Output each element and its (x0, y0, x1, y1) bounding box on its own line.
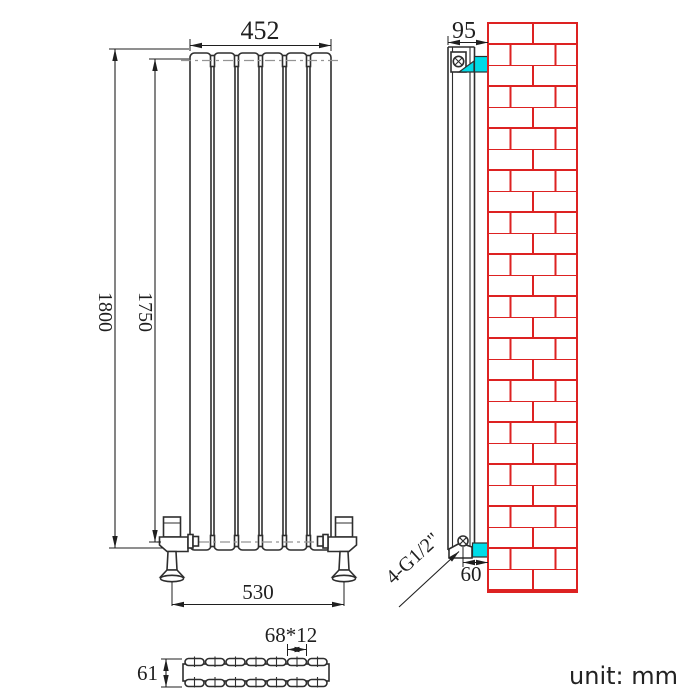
dim-section-depth-61: 61 (137, 659, 182, 687)
side-view: 95 60 4-G1/2" (382, 18, 577, 607)
dim-height-inner-label: 1750 (134, 292, 156, 332)
wall-anchor-bottom (473, 543, 489, 557)
unit-label: unit: mm (569, 662, 678, 690)
dim-tube-size-label: 68*12 (265, 623, 318, 647)
drawing-canvas: 452 1800 1750 530 (0, 0, 700, 700)
radiator-profile (448, 47, 475, 550)
connection-label: 4-G1/2" (382, 529, 445, 589)
dim-valve-span-label: 530 (242, 580, 274, 604)
dim-depth-95: 95 (448, 18, 488, 45)
dim-depth-label: 95 (452, 18, 476, 44)
radiator-technical-drawing: 452 1800 1750 530 (0, 0, 700, 700)
dim-tube-size-68x12: 68*12 (265, 623, 318, 656)
screw-icon (453, 56, 463, 66)
dim-height-inner-1750: 1750 (134, 59, 189, 542)
radiator-panels (190, 53, 331, 550)
front-view: 452 1800 1750 530 (94, 16, 357, 606)
dim-width-452: 452 (190, 16, 331, 51)
dim-wall-offset-label: 60 (461, 562, 482, 586)
brick-wall (488, 23, 577, 592)
wall-anchor-top (475, 57, 489, 73)
dim-height-label: 1800 (94, 292, 116, 332)
top-view: 61 68*12 (137, 623, 329, 688)
dim-valve-span-530: 530 (172, 580, 344, 605)
dim-section-depth-label: 61 (137, 661, 158, 685)
screw-icon (458, 536, 468, 546)
dim-width-label: 452 (241, 16, 280, 45)
